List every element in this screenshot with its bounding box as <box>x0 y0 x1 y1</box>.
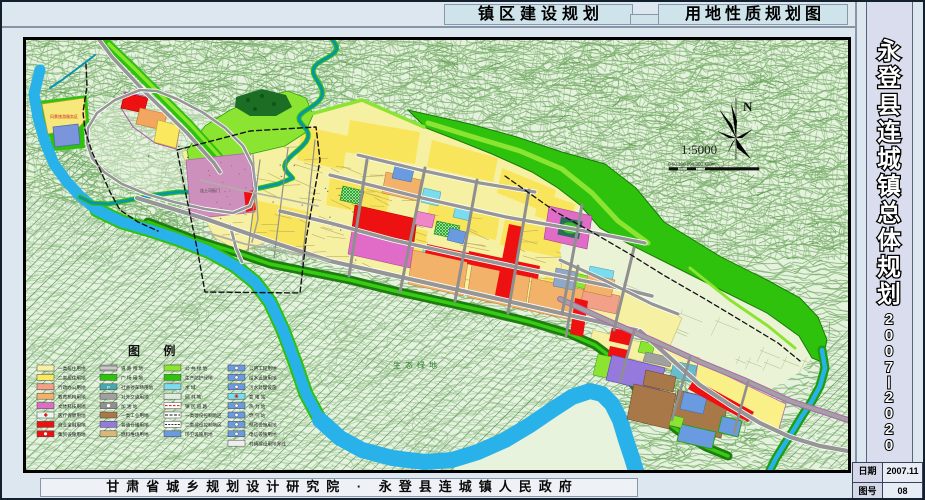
svg-text:|: | <box>887 374 891 389</box>
svg-text:体: 体 <box>877 227 901 253</box>
svg-text:行政办公用地: 行政办公用地 <box>58 384 86 391</box>
svg-text:广 场 用 地: 广 场 用 地 <box>121 375 144 382</box>
svg-text:连: 连 <box>877 118 901 145</box>
svg-text:2: 2 <box>885 311 893 328</box>
svg-text:0: 0 <box>885 437 893 454</box>
svg-text:商业金融用地: 商业金融用地 <box>58 422 86 429</box>
svg-text:1:5000: 1:5000 <box>681 142 717 157</box>
svg-text:2: 2 <box>885 389 893 406</box>
svg-text:登: 登 <box>876 65 901 91</box>
svg-text:二类建设控制地区: 二类建设控制地区 <box>185 422 222 429</box>
svg-text:连土司衙门: 连土司衙门 <box>200 187 220 193</box>
svg-text:污水处理设施: 污水处理设施 <box>249 384 277 391</box>
svg-text:医疗保健用地: 医疗保健用地 <box>58 412 86 419</box>
svg-text:一类建设控制地区: 一类建设控制地区 <box>185 412 222 419</box>
svg-text:风景旅游服务区: 风景旅游服务区 <box>50 113 78 119</box>
svg-text:燃料堆场用地: 燃料堆场用地 <box>121 431 149 438</box>
svg-text:生态绿地: 生态绿地 <box>393 360 441 370</box>
svg-text:总: 总 <box>877 199 901 226</box>
svg-text:县: 县 <box>877 92 901 118</box>
svg-text:一类居住用地: 一类居住用地 <box>58 365 86 372</box>
svg-text:划: 划 <box>877 281 901 307</box>
svg-text:道 路 用 地: 道 路 用 地 <box>121 365 144 372</box>
svg-text:0 50 100 200 300: 0 50 100 200 300 400m <box>668 162 716 167</box>
svg-text:教育机构用地: 教育机构用地 <box>58 393 86 400</box>
svg-text:永: 永 <box>877 38 901 64</box>
svg-text:二类居住用地: 二类居住用地 <box>58 375 86 382</box>
svg-text:加 油 站: 加 油 站 <box>121 403 138 410</box>
svg-text:0: 0 <box>885 343 893 360</box>
svg-text:给水设施用地: 给水设施用地 <box>249 375 277 382</box>
svg-text:一类工业用地: 一类工业用地 <box>121 412 149 419</box>
svg-text:变 电 站: 变 电 站 <box>249 393 266 400</box>
svg-text:水 域: 水 域 <box>185 384 196 390</box>
svg-text:对外交通用地: 对外交通用地 <box>121 393 149 400</box>
svg-text:镇: 镇 <box>877 173 901 199</box>
svg-text:N: N <box>743 99 753 114</box>
svg-text:图 例: 图 例 <box>128 343 185 358</box>
svg-text:P: P <box>107 385 110 390</box>
svg-text:镇 区 道 路: 镇 区 道 路 <box>185 403 208 410</box>
svg-text:2: 2 <box>885 421 893 438</box>
svg-text:普通仓储用地: 普通仓储用地 <box>121 422 149 429</box>
svg-text:园 林 地: 园 林 地 <box>185 393 202 400</box>
svg-text:集贸设施用地: 集贸设施用地 <box>58 431 86 438</box>
svg-text:村镇建设用地界线: 村镇建设用地界线 <box>249 440 286 447</box>
svg-text:规: 规 <box>877 254 901 280</box>
svg-text:环卫设施用地: 环卫设施用地 <box>185 431 213 438</box>
svg-text:公 共 绿 地: 公 共 绿 地 <box>185 365 208 372</box>
svg-text:电信设施用地: 电信设施用地 <box>249 431 277 438</box>
svg-text:0: 0 <box>885 405 893 422</box>
svg-text:城: 城 <box>877 145 901 172</box>
svg-text:文体科技用地: 文体科技用地 <box>58 403 86 410</box>
svg-text:生产防护绿地: 生产防护绿地 <box>185 375 213 382</box>
svg-text:燃 气 站: 燃 气 站 <box>249 412 266 419</box>
svg-text:公用工程用地: 公用工程用地 <box>249 365 277 372</box>
svg-text:社会停车场用地: 社会停车场用地 <box>121 384 154 391</box>
svg-text:0: 0 <box>885 327 893 344</box>
svg-text:邮政设施用地: 邮政设施用地 <box>249 422 277 429</box>
svg-text:热 力 站: 热 力 站 <box>249 403 266 410</box>
